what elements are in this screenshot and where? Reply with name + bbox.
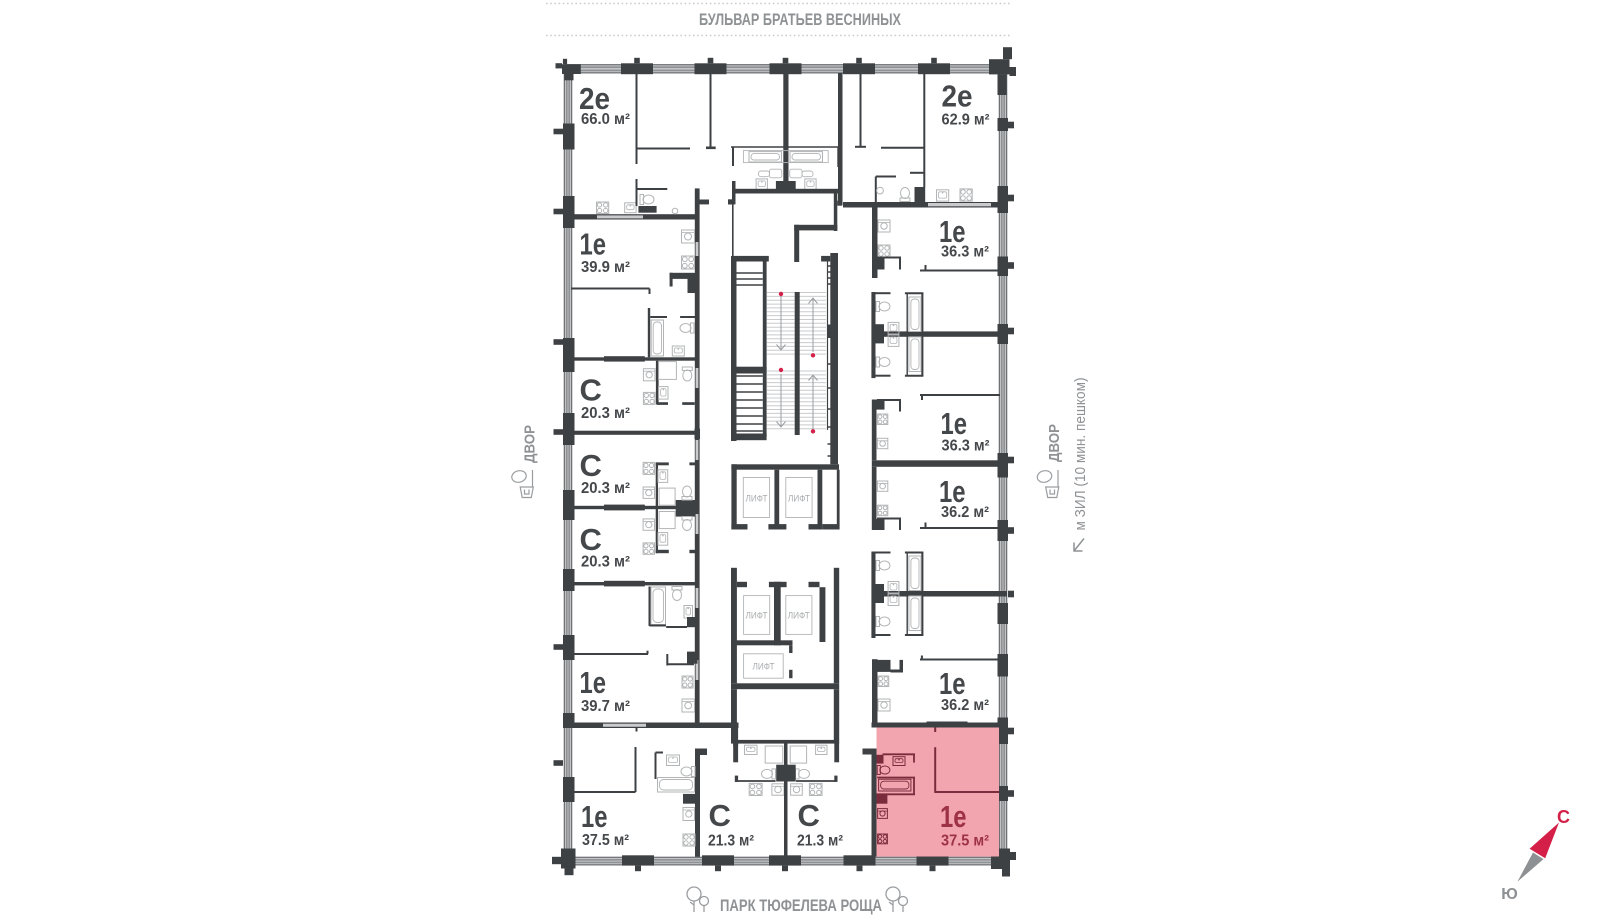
svg-text:36.3 м²: 36.3 м² [942, 438, 990, 455]
svg-text:39.7 м²: 39.7 м² [581, 698, 630, 715]
svg-text:ДВОР: ДВОР [1046, 424, 1063, 462]
svg-text:1е: 1е [939, 666, 966, 701]
svg-text:2е: 2е [942, 79, 973, 114]
svg-text:66.0 м²: 66.0 м² [581, 111, 630, 128]
svg-text:21.3 м²: 21.3 м² [797, 833, 843, 850]
svg-text:1е: 1е [581, 799, 608, 834]
svg-text:20.3 м²: 20.3 м² [581, 554, 630, 571]
svg-text:С: С [1557, 807, 1570, 827]
svg-text:С: С [580, 373, 602, 408]
svg-text:С: С [580, 448, 602, 483]
svg-text:36.2 м²: 36.2 м² [941, 504, 989, 521]
svg-text:ПАРК ТЮФЕЛЕВА РОЩА: ПАРК ТЮФЕЛЕВА РОЩА [720, 896, 882, 915]
svg-text:1е: 1е [940, 799, 967, 834]
svg-text:37.5 м²: 37.5 м² [941, 833, 989, 850]
svg-text:С: С [709, 798, 731, 833]
svg-text:37.5 м²: 37.5 м² [582, 832, 629, 849]
svg-text:С: С [798, 798, 820, 833]
svg-text:1е: 1е [580, 665, 607, 700]
svg-text:С: С [580, 522, 602, 557]
svg-text:ДВОР: ДВОР [522, 425, 539, 463]
svg-text:36.3 м²: 36.3 м² [941, 244, 989, 261]
svg-text:ЛИФТ: ЛИФТ [746, 611, 768, 622]
svg-text:1е: 1е [580, 227, 607, 262]
svg-text:ЛИФТ: ЛИФТ [788, 494, 810, 505]
svg-text:39.9 м²: 39.9 м² [581, 259, 630, 276]
svg-text:20.3 м²: 20.3 м² [581, 480, 630, 497]
svg-text:20.3 м²: 20.3 м² [581, 405, 630, 422]
svg-text:ЛИФТ: ЛИФТ [746, 494, 768, 505]
svg-text:Ю: Ю [1501, 886, 1518, 903]
svg-text:ЛИФТ: ЛИФТ [753, 662, 775, 673]
svg-text:1е: 1е [941, 406, 968, 441]
svg-text:м ЗИЛ (10 мин. пешком): м ЗИЛ (10 мин. пешком) [1073, 378, 1089, 531]
svg-text:62.9 м²: 62.9 м² [942, 112, 990, 129]
svg-text:БУЛЬВАР БРАТЬЕВ ВЕСНИНЫХ: БУЛЬВАР БРАТЬЕВ ВЕСНИНЫХ [699, 10, 901, 29]
svg-text:ЛИФТ: ЛИФТ [788, 611, 810, 622]
svg-text:21.3 м²: 21.3 м² [708, 833, 754, 850]
svg-text:36.2 м²: 36.2 м² [941, 697, 989, 714]
